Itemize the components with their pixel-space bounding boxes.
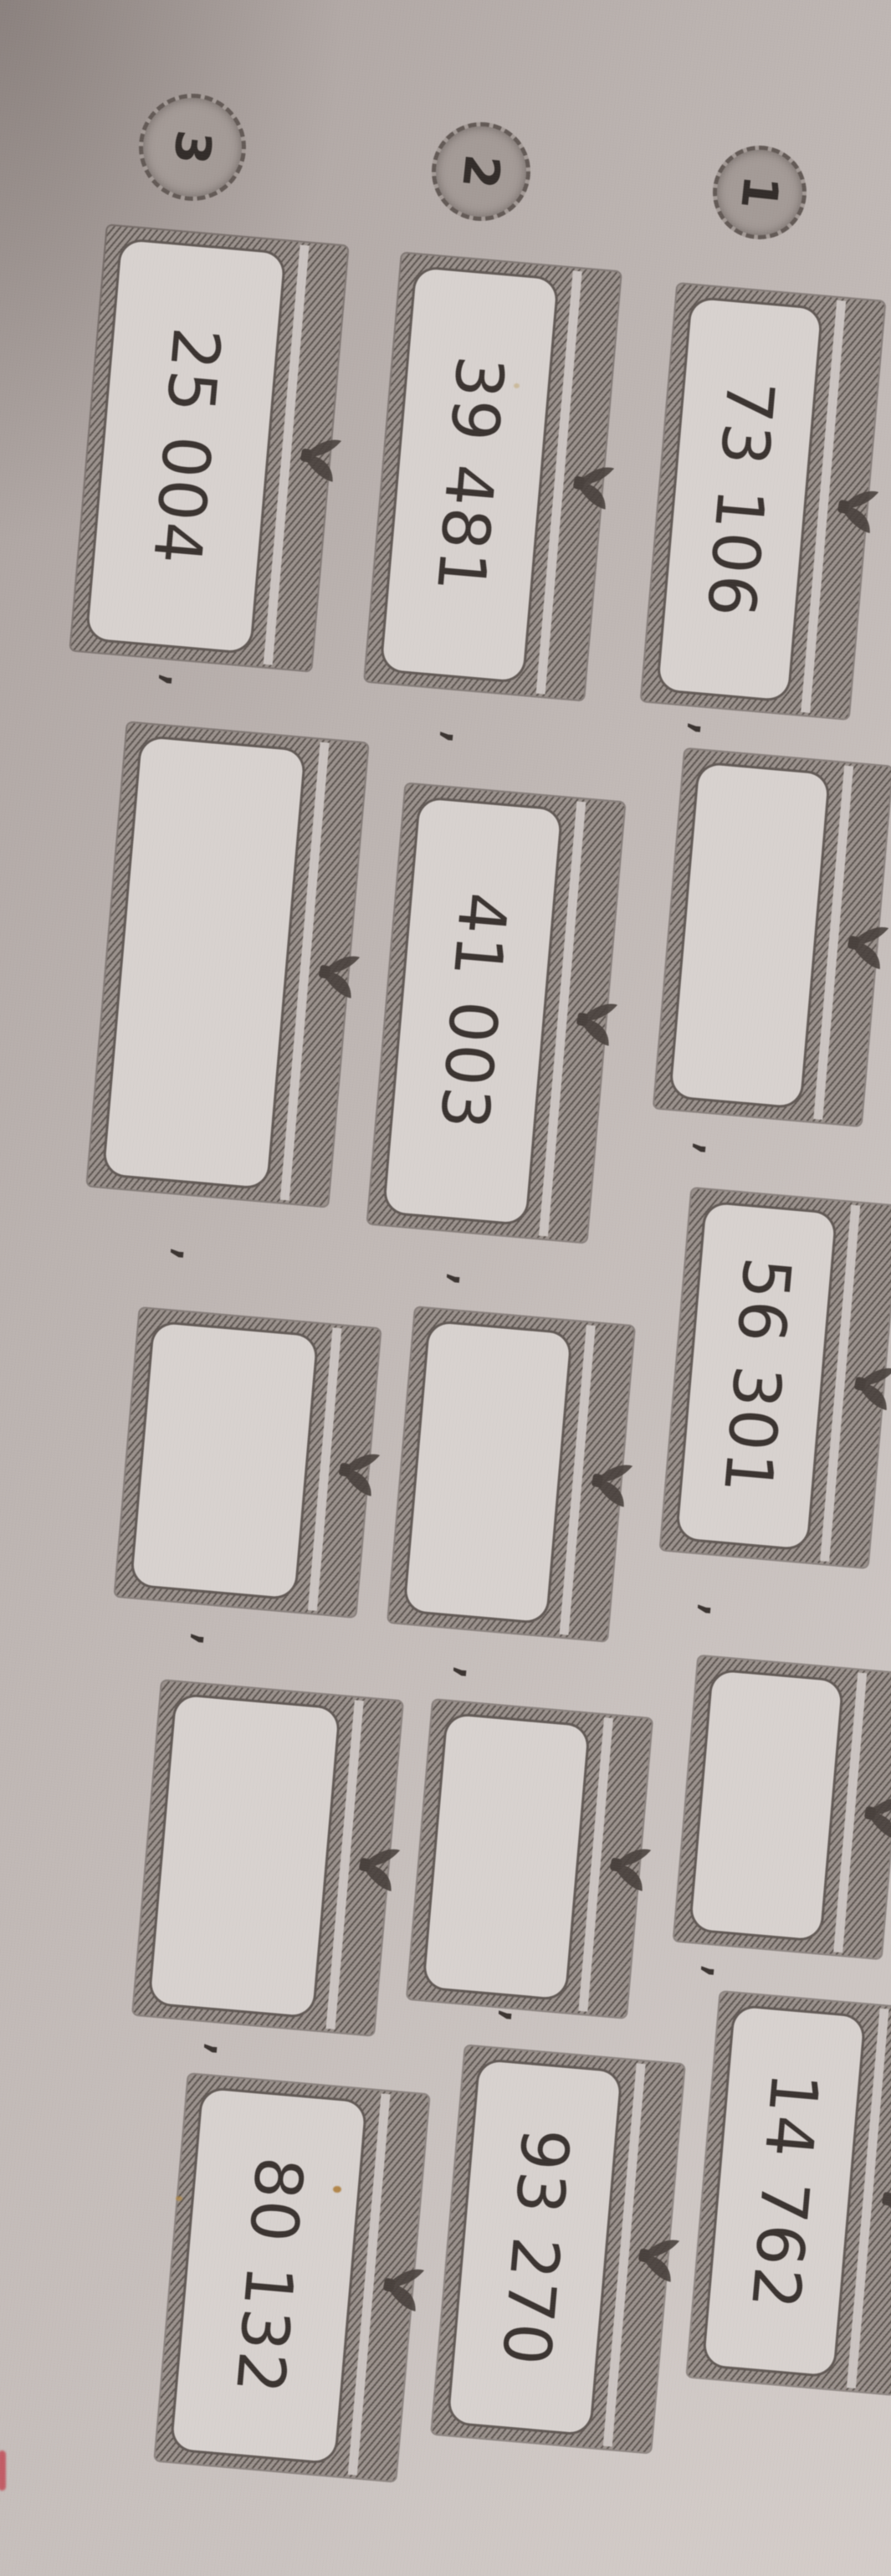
tag-p3-b5: 80 132 [155,2074,428,2481]
ribbon-strip [536,270,582,694]
tag-number: 14 762 [736,2069,832,2313]
ribbon-bow-icon [833,480,884,539]
separator-comma: , [697,1962,752,1983]
problem-number: 1 [730,172,790,212]
tag-p1-b4 [674,1656,891,1958]
number-box: 14 762 [701,2004,866,2378]
ribbon-bow-icon [850,1357,891,1415]
paper-speck [514,383,520,388]
tag-p3-b2 [87,723,367,1207]
number-box: 80 132 [169,2086,367,2466]
problem-badge-3: 3 [139,94,246,201]
problem-number: 2 [451,151,511,191]
answer-box[interactable] [101,735,306,1190]
number-box: 56 301 [675,1200,838,1551]
tag-p3-b1: 25 004 [70,225,347,670]
tag-number: 80 132 [221,2153,316,2398]
separator-comma: , [689,1139,744,1161]
separator-comma: , [155,670,210,692]
ribbon-strip [847,2009,889,2389]
tag-number: 39 481 [422,352,517,597]
separator-comma: , [443,1270,498,1291]
tag-p3-b3 [115,1308,381,1617]
number-box: 25 004 [84,238,286,655]
number-box: 39 481 [379,265,560,684]
ribbon-strip [264,245,310,665]
number-box: 93 270 [446,2058,623,2436]
problem-2-sequence: 39 481 , 41 003 , , [0,0,891,2576]
ribbon-bow-icon [296,428,347,487]
ribbon-bow-icon [860,1786,891,1845]
worksheet-page: 1 2 3 73 106 , , 56 301 [0,0,891,2576]
answer-box[interactable] [130,1320,320,1600]
tag-number: 41 003 [425,889,520,1133]
ribbon-bow-icon [634,2229,685,2287]
tag-p3-b4 [133,1681,402,2035]
separator-comma: , [694,1600,749,1622]
separator-comma: , [684,719,739,741]
separator-comma: , [187,1629,242,1651]
worksheet-photo: 1 2 3 73 106 , , 56 301 [0,0,891,2576]
tag-p2-b3 [388,1307,634,1640]
separator-comma: , [166,1244,222,1266]
ribbon-bow-icon [572,993,623,1051]
tag-number: 93 270 [487,2125,582,2369]
ribbon-strip [813,766,853,1120]
ribbon-strip [348,2093,391,2475]
ribbon-bow-icon [379,2258,430,2317]
ribbon-strip [603,2063,646,2446]
problem-3-sequence: 25 004 , , , , [0,0,891,2576]
problem-badge-1: 1 [713,146,807,239]
tag-p2-b1: 39 481 [365,254,621,700]
ribbon-bow-icon [587,1454,638,1512]
separator-comma: , [449,1663,504,1685]
ribbon-bow-icon [355,1839,406,1897]
ribbon-strip [833,1672,867,1953]
number-box: 41 003 [382,796,564,1226]
problem-number: 3 [162,127,223,167]
separator-comma: , [200,2040,255,2061]
ribbon-strip [801,300,846,713]
tag-p1-b2 [654,749,891,1126]
answer-box[interactable] [422,1712,591,2002]
ribbon-bow-icon [843,916,891,975]
tag-number: 56 301 [709,1254,804,1498]
separator-comma: , [436,727,491,749]
ribbon-bow-icon [315,945,366,1003]
ribbon-strip [539,801,586,1236]
problem-badge-2: 2 [432,122,530,221]
number-box: 73 106 [656,295,824,702]
tag-p1-b3: 56 301 [661,1188,891,1568]
tag-number: 73 106 [692,377,787,622]
ribbon-bow-icon [606,1838,657,1896]
tag-number: 25 004 [138,324,233,568]
ribbon-strip [820,1205,860,1562]
tag-p2-b4 [407,1700,652,2017]
answer-box[interactable] [668,761,832,1109]
ribbon-strip [280,742,330,1201]
tag-p2-b2: 41 003 [368,784,625,1243]
tag-p1-b1: 73 106 [642,284,885,719]
paper-speck [333,2186,341,2193]
tag-p2-b5: 93 270 [432,2045,684,2452]
ribbon-strip [578,1717,613,2012]
ribbon-bow-icon [335,1443,386,1501]
answer-box[interactable] [402,1320,573,1625]
answer-box[interactable] [147,1693,341,2019]
problem-1-sequence: 73 106 , , 56 301 , [0,0,891,2576]
separator-comma: , [494,2006,550,2028]
paper-speck [176,2196,182,2201]
ribbon-strip [560,1325,596,1635]
red-pen-mark [0,2450,6,2491]
answer-box[interactable] [689,1668,845,1942]
ribbon-strip [325,1700,363,2029]
ribbon-bow-icon [878,2172,891,2230]
tag-p1-b5: 14 762 [687,1992,891,2394]
ribbon-strip [308,1327,342,1611]
ribbon-bow-icon [569,456,620,515]
